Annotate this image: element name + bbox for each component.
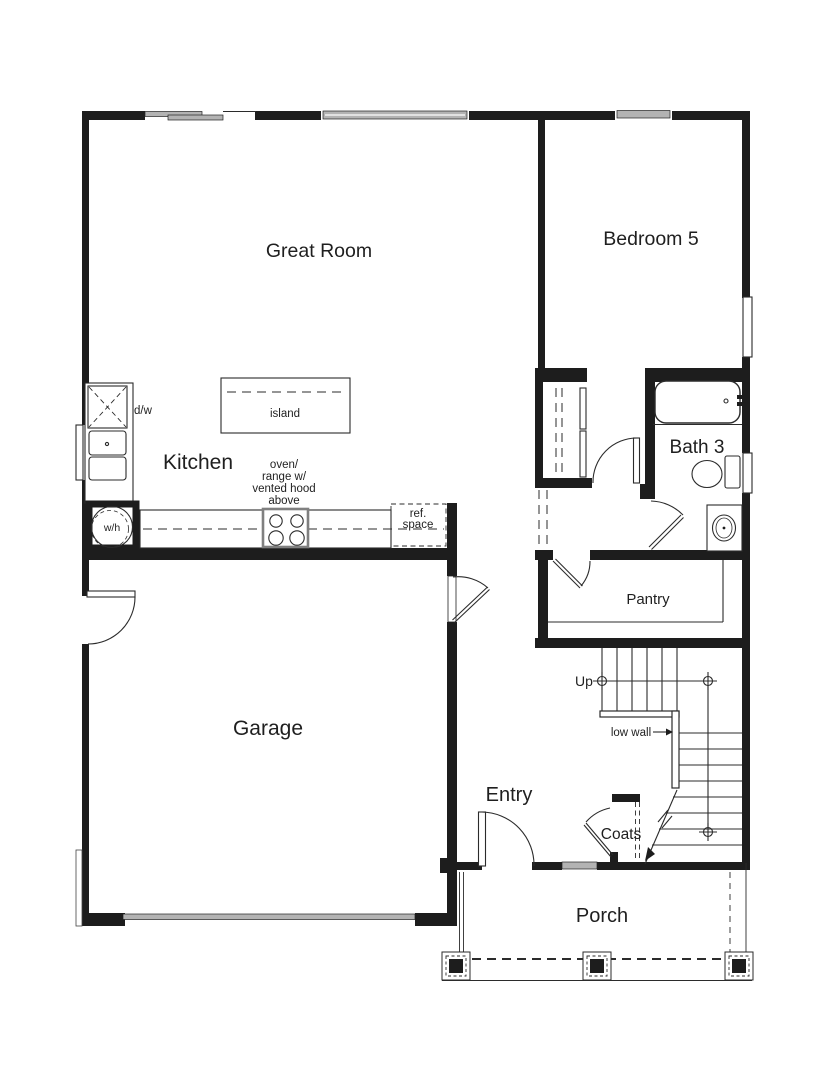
closet-door-panel xyxy=(580,431,586,477)
bathtub-icon xyxy=(653,381,742,425)
window-icon xyxy=(76,425,83,480)
island-icon xyxy=(221,378,350,433)
range-note-line1: oven/ xyxy=(270,459,299,471)
range-note-line4: above xyxy=(268,495,299,507)
range-note-line2: range w/ xyxy=(262,471,307,483)
ref-note-line2: space xyxy=(403,519,434,531)
garage-door-icon xyxy=(123,914,415,920)
porch-label: Porch xyxy=(576,905,628,927)
window-icon xyxy=(743,297,752,357)
pantry-label: Pantry xyxy=(626,591,670,608)
range-note-line3: vented hood xyxy=(252,483,315,495)
kitchen-label: Kitchen xyxy=(163,451,233,474)
stairs-up-label: Up xyxy=(575,673,593,689)
wall-face-line xyxy=(76,850,82,926)
water-heater-label: w/h xyxy=(103,522,121,534)
island-label: island xyxy=(270,408,300,420)
closet-door-panel xyxy=(580,388,586,429)
porch-column-icon xyxy=(725,952,753,980)
vanity-sink-icon xyxy=(707,505,742,551)
window-icon xyxy=(617,111,670,119)
bath3-label: Bath 3 xyxy=(670,437,725,458)
low-wall xyxy=(600,711,679,717)
floor-plan-canvas: Great Room Bedroom 5 Kitchen Bath 3 Pant… xyxy=(0,0,840,1085)
great-room-label: Great Room xyxy=(266,240,372,262)
window-icon xyxy=(743,453,752,493)
coats-label: Coats xyxy=(601,826,642,843)
garage-label: Garage xyxy=(233,717,303,740)
low-wall xyxy=(672,711,679,788)
cooktop-icon xyxy=(263,509,308,547)
entry-sill xyxy=(562,862,597,869)
porch-column-icon xyxy=(442,952,470,980)
bedroom5-label: Bedroom 5 xyxy=(603,228,699,250)
porch-column-icon xyxy=(583,952,611,980)
dishwasher-label: d/w xyxy=(134,405,153,417)
low-wall-label: low wall xyxy=(611,727,651,739)
window-icon xyxy=(168,115,223,120)
entry-label: Entry xyxy=(486,784,533,806)
floor-plan: Great Room Bedroom 5 Kitchen Bath 3 Pant… xyxy=(0,0,840,1085)
